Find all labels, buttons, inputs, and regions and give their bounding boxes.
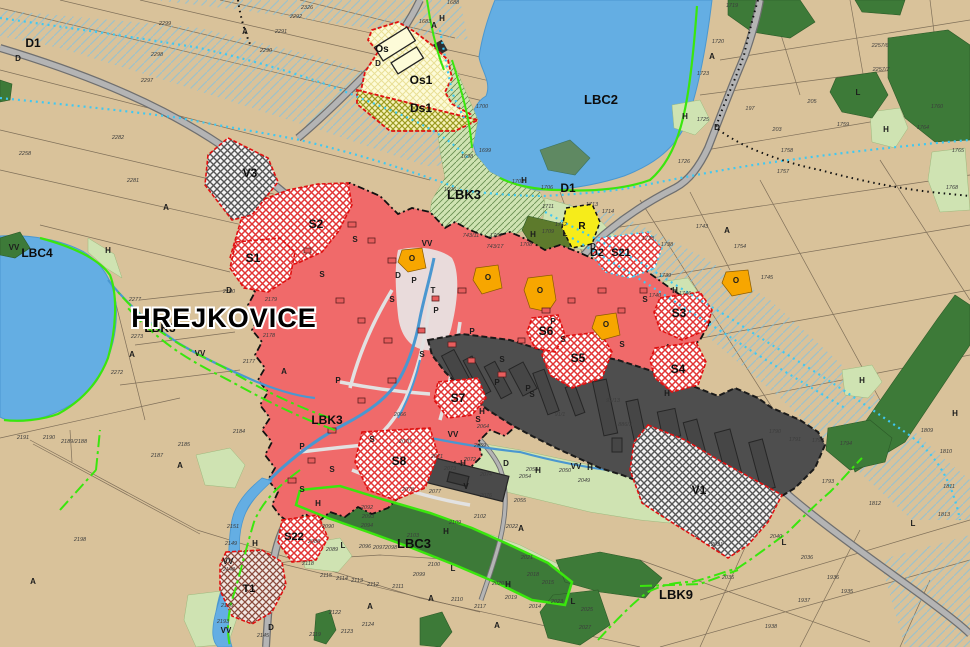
parcel-number: 1723 <box>697 71 710 77</box>
parcel-number: 2055 <box>513 498 527 504</box>
landuse-letter: O <box>485 273 491 282</box>
parcel-number: 2089 <box>325 547 338 553</box>
zone-label: LBK3 <box>447 187 481 202</box>
landuse-letter: P <box>433 306 439 315</box>
parcel-number: 2299 <box>158 21 171 27</box>
landuse-letter: O <box>603 320 609 329</box>
parcel-number: 2098 <box>384 545 398 551</box>
landuse-letter: S <box>389 295 395 304</box>
zone-label: LBC2 <box>584 92 618 107</box>
parcel-number: 2111 <box>391 584 403 590</box>
parcel-number: 2071 <box>430 454 443 460</box>
parcel-number: 2064 <box>476 424 489 430</box>
parcel-number: 743/11 <box>463 233 479 239</box>
parcel-number: 1738 <box>661 242 674 248</box>
parcel-number: 1938 <box>765 624 778 630</box>
landuse-letter: D <box>226 286 232 295</box>
landuse-letter: A <box>163 203 169 212</box>
parcel-number: 1937 <box>798 598 811 604</box>
landuse-letter: VV <box>422 239 433 248</box>
landuse-letter: H <box>315 499 321 508</box>
landuse-letter: D <box>714 123 720 132</box>
parcel-number: 2298 <box>150 52 164 58</box>
parcel-number: 1760 <box>931 104 944 110</box>
parcel-number: 205 <box>806 99 817 105</box>
parcel-number: 2031 <box>710 542 723 548</box>
landuse-letter: VV <box>448 430 459 439</box>
parcel-number: 1700 <box>476 104 489 110</box>
parcel-number: 2076 <box>479 493 493 499</box>
landuse-letter: S <box>642 295 648 304</box>
landuse-letter: H <box>252 539 258 548</box>
landuse-letter: S <box>529 390 535 399</box>
landuse-letter: S <box>499 355 505 364</box>
landuse-letter: H <box>672 286 678 295</box>
parcel-number: 1765 <box>952 148 965 154</box>
parcel-number: 2078 <box>401 487 415 493</box>
parcel-number: 1713 <box>586 202 599 208</box>
zone-label: S1 <box>246 251 261 265</box>
map-canvas[interactable]: 2299229822972290229122922326228222582281… <box>0 0 970 647</box>
landuse-letter: H <box>521 176 527 185</box>
parcel-number: 2036 <box>800 555 814 561</box>
landuse-letter: VV <box>223 557 234 566</box>
landuse-letter: S <box>475 415 481 424</box>
parcel-number: 2066 <box>393 412 407 418</box>
parcel-number: 1720 <box>712 39 725 45</box>
zone-label: S22 <box>284 531 304 543</box>
parcel-number: 1719 <box>726 3 738 9</box>
parcel-number: 1743 <box>696 224 709 230</box>
parcel-number: 2177 <box>242 359 256 365</box>
landuse-letter: A <box>518 524 524 533</box>
zone-label: Ds1 <box>410 101 432 115</box>
landuse-letter: S <box>560 335 566 344</box>
parcel-number: 197 <box>745 106 755 112</box>
parcel-number: 203 <box>771 127 782 133</box>
zone-label: T1 <box>243 583 256 595</box>
landuse-letter: H <box>439 14 445 23</box>
parcel-number: 2117 <box>473 604 487 610</box>
parcel-number: 886/3 <box>618 422 633 428</box>
parcel-number: 2145 <box>256 633 270 639</box>
landuse-letter: VV <box>195 349 206 358</box>
landuse-letter: H <box>443 527 449 536</box>
zone-label: S8 <box>392 454 407 468</box>
parcel-number: 91/13 <box>606 398 621 404</box>
parcel-number: 1768 <box>946 185 959 191</box>
parcel-number: 2114 <box>335 576 348 582</box>
parcel-number: 2189/2188 <box>60 439 88 445</box>
landuse-letter: S <box>419 350 425 359</box>
landuse-letter: P <box>335 376 341 385</box>
landuse-letter: VV <box>9 243 20 252</box>
landuse-letter: O <box>537 286 543 295</box>
landuse-letter: H <box>460 459 466 468</box>
parcel-number: 2193 <box>216 619 230 625</box>
parcel-number: 2151 <box>226 524 239 530</box>
landuse-letter: A <box>431 21 437 30</box>
parcel-number: 2100 <box>427 562 441 568</box>
parcel-number: 2096 <box>358 544 372 550</box>
parcel-number: 2123 <box>340 629 354 635</box>
parcel-number: 1764 <box>917 125 929 131</box>
parcel-number: 2015 <box>541 580 555 586</box>
parcel-number: 2110 <box>450 597 464 603</box>
landuse-letter: L <box>782 538 787 547</box>
landuse-letter: O <box>409 254 415 263</box>
landuse-letter: A <box>428 594 434 603</box>
landuse-letter: VV <box>221 626 232 635</box>
parcel-number: 2257/6 <box>871 43 890 49</box>
zone-label: LBC3 <box>397 536 431 551</box>
parcel-number: 2290 <box>259 48 273 54</box>
parcel-number: 2190 <box>42 435 56 441</box>
landuse-letter: V <box>463 482 469 491</box>
landuse-letter: P <box>411 276 417 285</box>
landuse-letter: A <box>724 226 730 235</box>
parcel-number: 2090 <box>321 524 335 530</box>
landuse-letter: H <box>535 466 541 475</box>
parcel-number: 1706 <box>541 185 554 191</box>
parcel-number: 1699 <box>479 148 491 154</box>
parcel-number: 2054 <box>518 474 531 480</box>
parcel-number: 2281 <box>126 178 139 184</box>
landuse-letter: D <box>15 54 21 63</box>
parcel-number: 2109 <box>448 520 461 526</box>
parcel-number: 2113 <box>350 578 364 584</box>
landuse-letter: H <box>883 125 889 134</box>
parcel-number: 2019 <box>504 595 517 601</box>
parcel-number: 2273 <box>130 334 144 340</box>
landuse-letter: D <box>395 271 401 280</box>
parcel-number: 2148 <box>222 567 236 573</box>
landuse-letter: L <box>571 597 576 606</box>
landuse-letter: A <box>709 52 715 61</box>
parcel-number: 2022 <box>505 524 518 530</box>
landuse-letter: A <box>177 461 183 470</box>
parcel-number: 2094 <box>360 523 373 529</box>
landuse-letter: A <box>367 602 373 611</box>
parcel-number: 2292 <box>289 14 302 20</box>
parcel-number: 1759 <box>837 122 849 128</box>
parcel-number: 2018 <box>526 572 540 578</box>
zone-label: S21 <box>611 247 631 259</box>
parcel-number: 1739 <box>659 273 671 279</box>
parcel-number: 1792 <box>812 438 824 444</box>
zone-label: S3 <box>672 306 687 320</box>
parcel-number: 2073 <box>443 466 457 472</box>
parcel-number: 1688 <box>447 0 460 6</box>
parcel-number: 1790 <box>769 429 782 435</box>
zone-label: LBC4 <box>21 246 53 260</box>
parcel-number: 1714 <box>602 209 614 215</box>
parcel-number: 1754 <box>734 244 746 250</box>
parcel-number: 1740 <box>649 293 662 299</box>
parcel-number: 2119 <box>308 632 321 638</box>
parcel-number: 2020 <box>491 581 505 587</box>
landuse-letter: A <box>494 621 500 630</box>
zone-label: Os1 <box>410 73 433 87</box>
parcel-number: 1812 <box>869 501 881 507</box>
parcel-number: 2122 <box>328 610 341 616</box>
parcel-number: 1711 <box>542 204 554 210</box>
parcel-number: 2257/7 <box>872 67 891 73</box>
parcel-number: 1758 <box>781 148 794 154</box>
landuse-letter: L <box>341 541 346 550</box>
landuse-letter: P <box>299 442 305 451</box>
parcel-number: 2184 <box>232 429 245 435</box>
parcel-number: 743/17 <box>487 244 505 250</box>
zone-label: D1 <box>560 181 576 195</box>
parcel-number: 1683 <box>419 19 432 25</box>
parcel-number: 2282 <box>111 135 124 141</box>
zone-label: R <box>578 221 586 232</box>
parcel-number: 1745 <box>761 275 774 281</box>
parcel-number: 2291 <box>274 29 287 35</box>
parcel-number: 1811 <box>943 484 955 490</box>
parcel-number: 1794 <box>840 441 852 447</box>
parcel-number: 2021 <box>520 555 533 561</box>
parcel-number: 1936 <box>827 575 840 581</box>
parcel-number: 2102 <box>473 514 486 520</box>
parcel-number: 2027 <box>578 625 592 631</box>
parcel-number: 2178 <box>262 333 276 339</box>
landuse-letter: D <box>268 623 274 632</box>
parcel-number: 1726 <box>678 159 691 165</box>
zoning-map-viewport[interactable]: 2299229822972290229122922326228222582281… <box>0 0 970 647</box>
parcel-number: 1793 <box>822 479 835 485</box>
parcel-number: 1712 <box>555 222 567 228</box>
zone-label: S4 <box>671 362 686 376</box>
zone-label: D2 <box>590 247 604 259</box>
parcel-number: 1809 <box>921 428 933 434</box>
landuse-letter: S <box>619 340 625 349</box>
parcel-number: 2023 <box>550 599 564 605</box>
landuse-letter: H <box>505 580 511 589</box>
parcel-number: 2146 <box>220 603 234 609</box>
landuse-letter: A <box>242 27 248 36</box>
landuse-letter: A <box>30 577 36 586</box>
parcel-number: 2070 <box>398 439 412 445</box>
parcel-number: 1709 <box>542 229 554 235</box>
landuse-letter: S <box>319 270 325 279</box>
landuse-letter: H <box>859 376 865 385</box>
landuse-letter: L <box>563 229 568 238</box>
parcel-number: 2297 <box>140 78 154 84</box>
parcel-number: 2074 <box>479 472 492 478</box>
parcel-number: 2118 <box>301 561 315 567</box>
parcel-number: 2191 <box>16 435 29 441</box>
zone-label: S5 <box>571 351 586 365</box>
landuse-letter: L <box>911 519 916 528</box>
parcel-number: 2149 <box>224 541 237 547</box>
parcel-number: 2115 <box>319 573 333 579</box>
landuse-letter: L <box>856 88 861 97</box>
parcel-number: 1810 <box>940 449 953 455</box>
zone-label: LBK3 <box>311 413 343 427</box>
zone-label: V3 <box>243 166 258 180</box>
parcel-number: 2069 <box>473 443 486 449</box>
parcel-number: 2272 <box>110 370 123 376</box>
parcel-number: 91/1 <box>555 412 566 418</box>
village-name-label: HREJKOVICE <box>131 303 317 333</box>
landuse-letter: H <box>105 246 111 255</box>
zone-label: V1 <box>692 483 707 497</box>
landuse-letter: P <box>469 327 475 336</box>
parcel-number: 2093 <box>361 514 375 520</box>
parcel-number: 2077 <box>428 489 442 495</box>
parcel-number: 2112 <box>366 582 379 588</box>
parcel-number: 1707 <box>490 233 503 239</box>
parcel-number: 2099 <box>412 572 425 578</box>
zone-label: D1 <box>25 36 41 50</box>
parcel-number: 1791 <box>789 437 801 443</box>
parcel-number: 1708 <box>520 242 533 248</box>
parcel-number: 1746 <box>679 291 692 297</box>
landuse-letter: D <box>375 59 381 68</box>
parcel-number: 2185 <box>177 442 191 448</box>
landuse-letter: H <box>952 409 958 418</box>
landuse-letter: S <box>352 235 358 244</box>
landuse-letter: H <box>664 389 670 398</box>
zone-label: Os <box>375 44 389 55</box>
landuse-letter: H <box>530 230 536 239</box>
landuse-letter: H <box>682 112 688 121</box>
parcel-number: 1698 <box>461 154 474 160</box>
landuse-letter: S <box>369 435 375 444</box>
parcel-number: 2088 <box>307 539 321 545</box>
landuse-letter: S <box>299 485 305 494</box>
parcel-number: 2258 <box>18 151 32 157</box>
landuse-letter: D <box>503 459 509 468</box>
parcel-number: 2014 <box>528 604 541 610</box>
parcel-number: 2035 <box>721 575 735 581</box>
parcel-number: 1725 <box>697 117 710 123</box>
zone-label: S7 <box>451 391 466 405</box>
landuse-letter: O <box>733 276 739 285</box>
landuse-letter: L <box>451 564 456 573</box>
parcel-number: 1757 <box>777 169 790 175</box>
zone-label: LBK9 <box>659 587 693 602</box>
zone-label: S6 <box>539 324 554 338</box>
parcel-number: 1935 <box>841 589 854 595</box>
parcel-number: 2025 <box>580 607 594 613</box>
landuse-letter: T <box>431 286 436 295</box>
parcel-number: 1813 <box>938 512 951 518</box>
landuse-letter: P <box>494 378 500 387</box>
parcel-number: 2198 <box>73 537 87 543</box>
parcel-number: 2124 <box>361 622 374 628</box>
landuse-letter: VV <box>571 462 582 471</box>
landuse-letter: S <box>329 465 335 474</box>
parcel-number: 2187 <box>150 453 164 459</box>
parcel-number: 2092 <box>360 505 373 511</box>
landuse-letter: H <box>587 463 593 472</box>
landuse-letter: A <box>129 350 135 359</box>
zone-label: S2 <box>309 217 324 231</box>
parcel-number: 2049 <box>577 478 590 484</box>
parcel-number: 1733 <box>642 236 655 242</box>
parcel-number: 2326 <box>300 5 314 11</box>
landuse-letter: A <box>281 367 287 376</box>
